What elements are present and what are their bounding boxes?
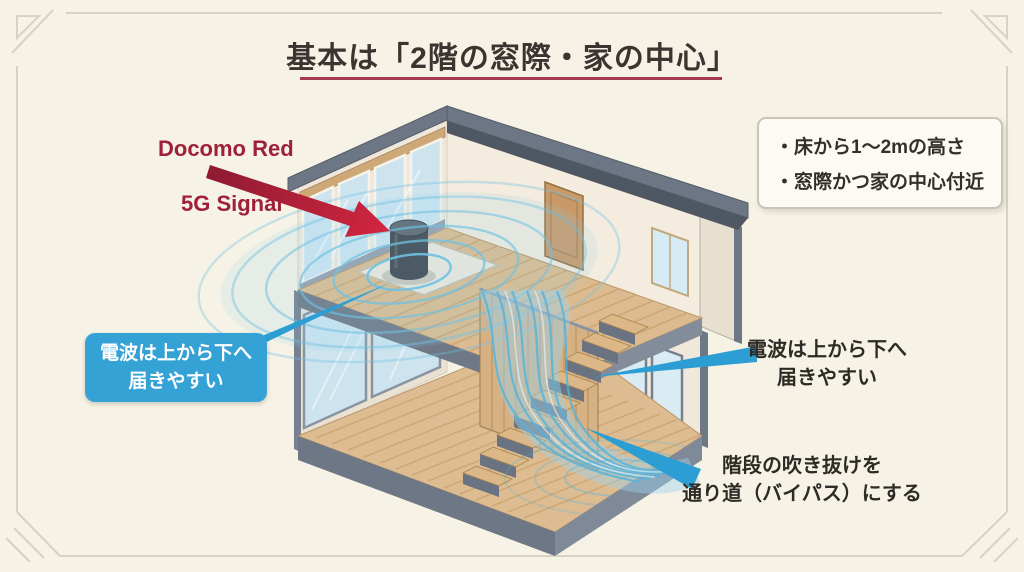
5g-signal-label: 5G Signal bbox=[181, 193, 294, 215]
right-corner-post bbox=[734, 224, 742, 344]
right-corner-post-lower bbox=[700, 330, 708, 448]
annotation-right-line1: 電波は上から下へ bbox=[742, 336, 912, 364]
tip-item: ・床から1〜2mの高さ bbox=[775, 132, 985, 159]
callout-left: 電波は上から下へ 届きやすい bbox=[85, 333, 267, 402]
title-underline bbox=[300, 77, 722, 80]
slide: 基本は「2階の窓際・家の中心」 Docomo Red 5G Signal ・床か… bbox=[0, 0, 1024, 572]
annotation-right: 電波は上から下へ 届きやすい bbox=[742, 336, 912, 393]
callout-left-line1: 電波は上から下へ bbox=[100, 340, 252, 368]
annotation-bottom-line2: 通り道（バイパス）にする bbox=[662, 480, 942, 508]
annotation-bottom: 階段の吹き抜けを 通り道（バイパス）にする bbox=[662, 452, 942, 509]
right-gable-facet bbox=[700, 210, 738, 342]
annotation-bottom-line1: 階段の吹き抜けを bbox=[662, 452, 942, 480]
signal-source-label: Docomo Red 5G Signal bbox=[158, 138, 294, 215]
docomo-red-label: Docomo Red bbox=[158, 138, 294, 160]
tips-box: ・床から1〜2mの高さ ・窓際かつ家の中心付近 bbox=[757, 117, 1003, 209]
annotation-right-line2: 届きやすい bbox=[742, 364, 912, 392]
back-wall-window bbox=[652, 228, 688, 296]
callout-left-line2: 届きやすい bbox=[128, 368, 223, 396]
page-title: 基本は「2階の窓際・家の中心」 bbox=[0, 33, 1024, 77]
tip-item: ・窓際かつ家の中心付近 bbox=[775, 167, 985, 194]
